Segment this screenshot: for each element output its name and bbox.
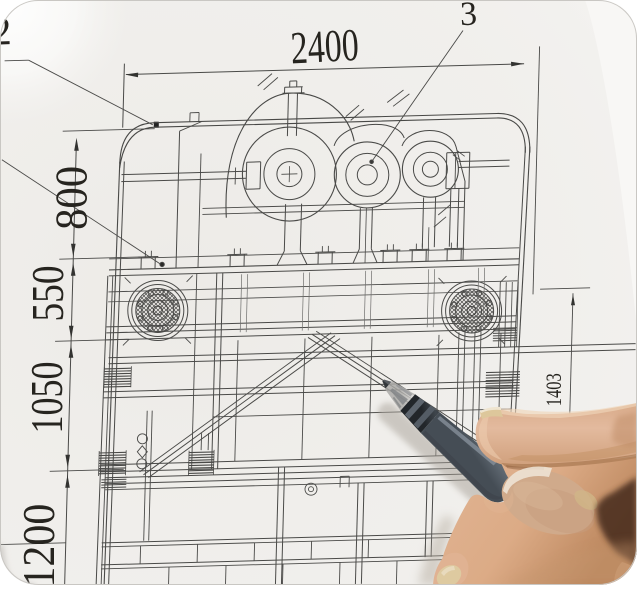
svg-text:800: 800 bbox=[45, 166, 96, 230]
svg-text:2: 2 bbox=[0, 8, 12, 54]
svg-text:1403: 1403 bbox=[541, 373, 566, 406]
svg-text:1050: 1050 bbox=[21, 362, 72, 434]
svg-text:2400: 2400 bbox=[289, 19, 360, 73]
svg-text:3: 3 bbox=[459, 0, 477, 33]
svg-text:1200: 1200 bbox=[13, 504, 64, 585]
svg-text:550: 550 bbox=[22, 266, 73, 322]
